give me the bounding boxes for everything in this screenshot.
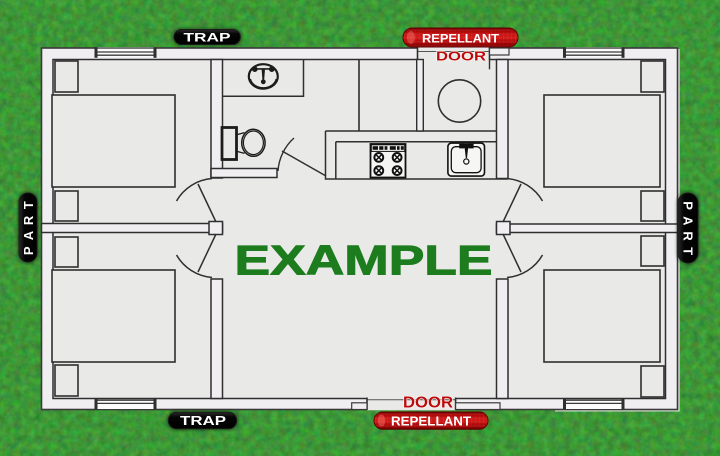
svg-text:DOOR: DOOR — [403, 394, 453, 411]
svg-text:T: T — [681, 247, 696, 255]
svg-text:R: R — [681, 231, 696, 241]
svg-text:A: A — [21, 230, 36, 240]
svg-text:REPELLANT: REPELLANT — [391, 414, 471, 429]
svg-text:DOOR: DOOR — [436, 48, 487, 63]
svg-text:A: A — [681, 216, 696, 226]
svg-text:REPELLANT: REPELLANT — [422, 33, 499, 45]
svg-text:P: P — [21, 246, 36, 255]
svg-text:TRAP: TRAP — [180, 414, 226, 428]
svg-text:P: P — [681, 201, 696, 210]
svg-text:EXAMPLE: EXAMPLE — [235, 237, 493, 284]
svg-text:T: T — [21, 201, 36, 209]
svg-text:R: R — [21, 215, 36, 225]
svg-text:TRAP: TRAP — [184, 32, 231, 44]
